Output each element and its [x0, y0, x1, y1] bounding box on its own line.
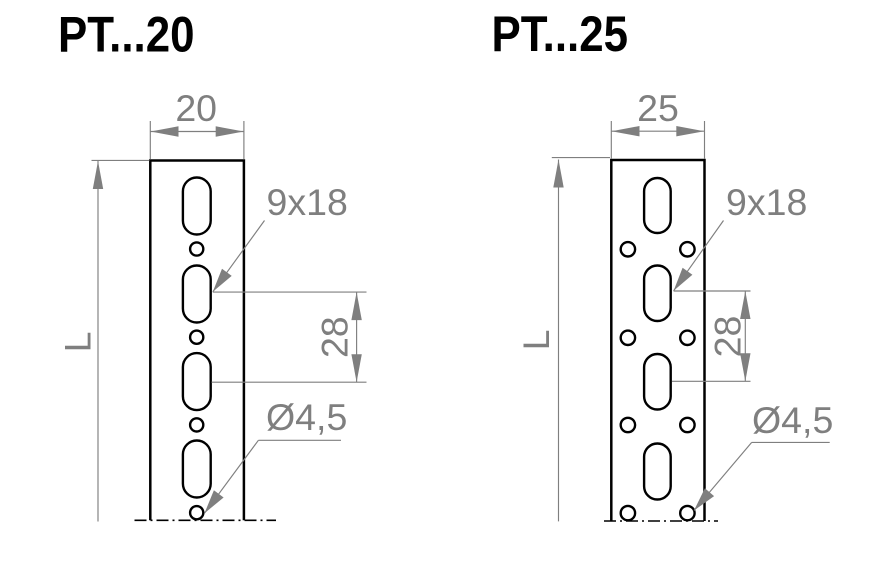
svg-text:9x18: 9x18 — [726, 181, 807, 223]
svg-text:28: 28 — [314, 316, 356, 358]
svg-text:Ø4,5: Ø4,5 — [752, 399, 833, 441]
svg-text:L: L — [57, 332, 99, 353]
svg-text:25: 25 — [637, 87, 679, 129]
svg-text:Ø4,5: Ø4,5 — [266, 396, 347, 438]
svg-text:28: 28 — [707, 316, 749, 358]
svg-text:20: 20 — [175, 87, 217, 129]
svg-text:PT...20: PT...20 — [58, 7, 195, 63]
svg-text:L: L — [515, 330, 557, 351]
svg-text:PT...25: PT...25 — [492, 6, 629, 62]
svg-text:9x18: 9x18 — [267, 181, 348, 223]
